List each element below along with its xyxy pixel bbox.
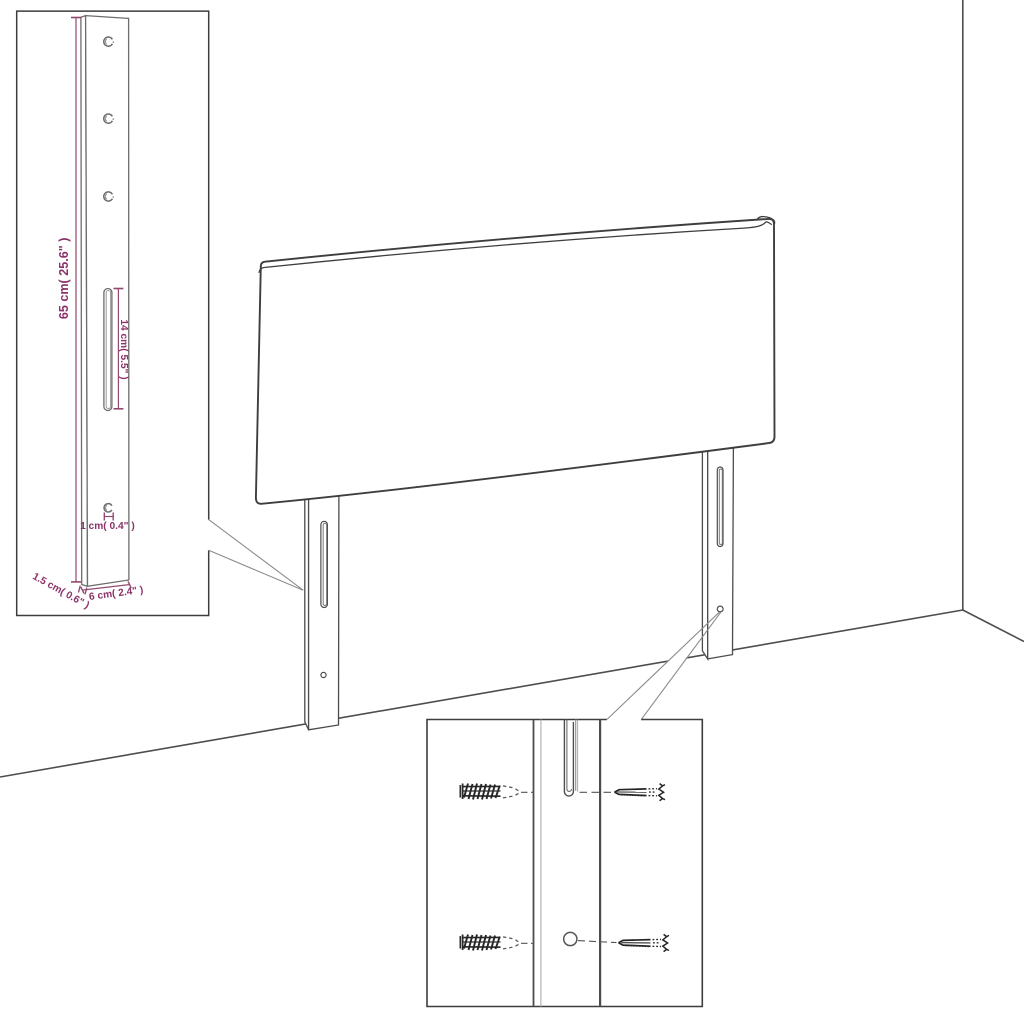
svg-text:1 cm( 0.4" ): 1 cm( 0.4" ) bbox=[80, 521, 135, 532]
svg-text:65 cm( 25.6" ): 65 cm( 25.6" ) bbox=[57, 238, 71, 320]
svg-text:14 cm( 5.5" ): 14 cm( 5.5" ) bbox=[118, 319, 129, 379]
